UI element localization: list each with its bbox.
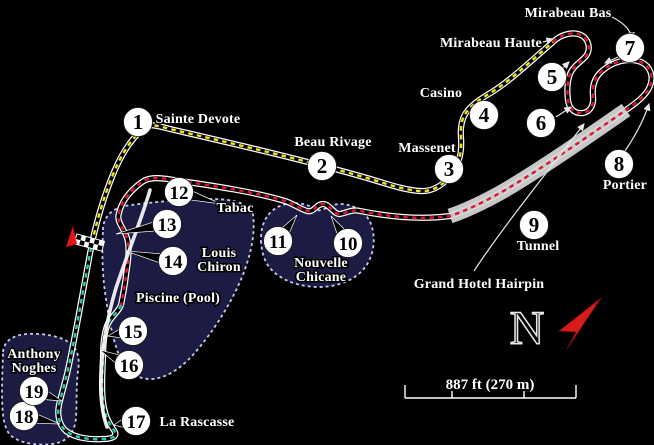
corner-marker-10: 10 <box>334 229 363 258</box>
compass-letter: N <box>510 302 545 355</box>
corner-marker-8: 8 <box>605 150 634 179</box>
corner-marker-17: 17 <box>122 407 151 436</box>
corner-number: 4 <box>479 103 490 127</box>
label-sainte-devote: Sainte Devote <box>156 112 241 127</box>
label-anthony-noghes: AnthonyNoghes <box>7 347 61 376</box>
corner-marker-2: 2 <box>308 152 337 181</box>
corner-number: 13 <box>158 215 177 236</box>
label-la-rascasse: La Rascasse <box>160 415 235 430</box>
label-louis-chiron: LouisChiron <box>197 246 241 275</box>
corner-marker-19: 19 <box>20 377 49 406</box>
corner-number: 8 <box>614 152 625 176</box>
label-nouvelle-chicane: NouvelleChicane <box>294 256 348 285</box>
corner-marker-14: 14 <box>159 247 188 276</box>
corner-number: 1 <box>133 110 144 134</box>
corner-marker-3: 3 <box>435 155 464 184</box>
corner-marker-7: 7 <box>616 34 645 63</box>
circuit-map: 12345678910111213141516171819 Sainte Dev… <box>0 0 654 445</box>
corner-marker-16: 16 <box>115 351 144 380</box>
corner-number: 18 <box>15 407 34 428</box>
corner-marker-5: 5 <box>538 63 567 92</box>
corner-number: 19 <box>25 382 44 403</box>
label-massenet: Massenet <box>398 141 456 156</box>
label-mirabeau-bas: Mirabeau Bas <box>525 6 612 21</box>
corner-marker-13: 13 <box>153 210 182 239</box>
corner-number: 11 <box>269 232 287 253</box>
corner-marker-12: 12 <box>165 178 194 207</box>
label-portier: Portier <box>603 178 647 193</box>
corner-marker-1: 1 <box>124 108 153 137</box>
corner-number: 10 <box>339 234 358 255</box>
corner-number: 9 <box>529 213 540 237</box>
corner-marker-6: 6 <box>527 109 556 138</box>
corner-number: 12 <box>170 183 189 204</box>
corner-marker-11: 11 <box>264 227 293 256</box>
label-piscine: Piscine (Pool) <box>136 291 220 306</box>
label-tunnel: Tunnel <box>517 239 560 254</box>
corner-number: 5 <box>547 65 558 89</box>
corner-number: 6 <box>536 111 547 135</box>
label-tabac: Tabac <box>216 201 253 216</box>
label-casino: Casino <box>420 86 462 101</box>
corner-marker-9: 9 <box>520 211 549 240</box>
corner-number: 2 <box>317 154 328 178</box>
label-mirabeau-haute: Mirabeau Haute <box>440 36 542 51</box>
corner-marker-15: 15 <box>119 317 148 346</box>
corner-number: 16 <box>120 356 139 377</box>
corner-number: 7 <box>625 36 636 60</box>
label-beau-rivage: Beau Rivage <box>294 135 371 150</box>
corner-number: 3 <box>444 157 455 181</box>
label-grand-hotel-hairpin: Grand Hotel Hairpin <box>414 277 545 292</box>
corner-number: 14 <box>164 252 184 273</box>
corner-number: 17 <box>127 412 147 433</box>
corner-number: 15 <box>124 322 143 343</box>
scale-bar-label: 887 ft (270 m) <box>446 377 535 393</box>
corner-marker-4: 4 <box>470 101 499 130</box>
